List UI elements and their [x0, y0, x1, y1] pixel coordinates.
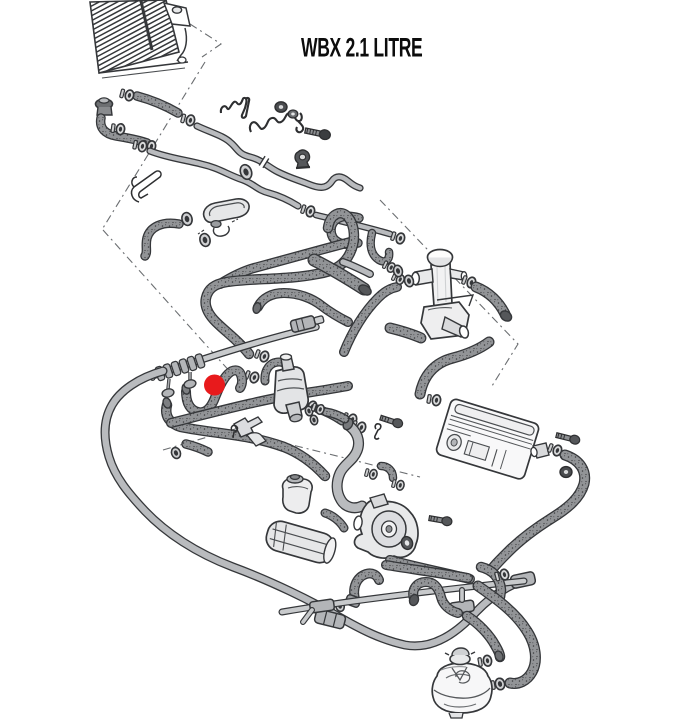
svg-text:WBX 2.1 LITRE: WBX 2.1 LITRE [301, 33, 423, 62]
